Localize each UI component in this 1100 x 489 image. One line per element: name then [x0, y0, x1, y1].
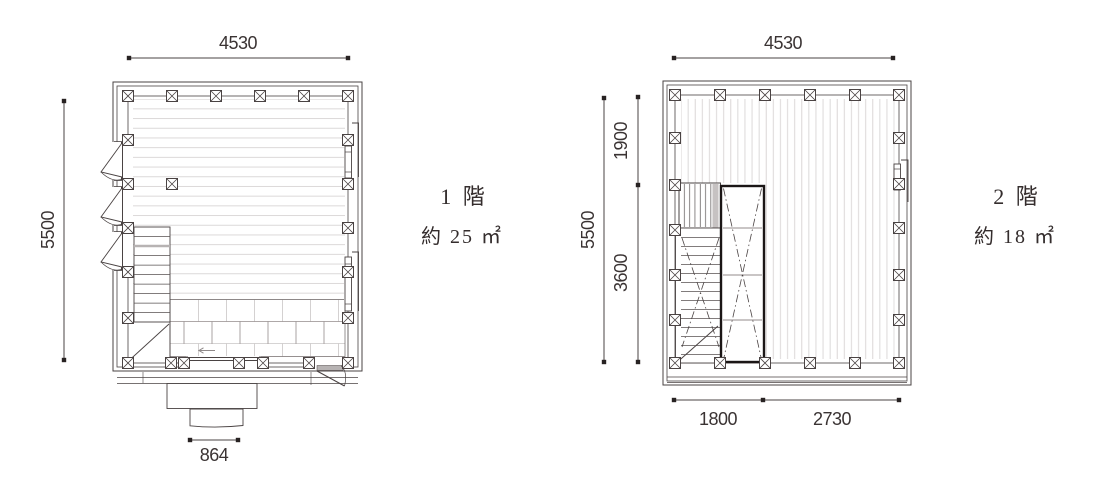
floor1-dimension-bottom: 864 [188, 438, 240, 465]
floor1-dim-entrance-text: 864 [200, 445, 229, 465]
floor2-dim-width-text: 4530 [764, 33, 803, 53]
floor1-dimension-left: 5500 [38, 99, 66, 362]
floor2-dim-upper-text: 1900 [611, 121, 631, 160]
floor2-dim-lower-text: 3600 [611, 253, 631, 292]
floor2-dimension-left-outer: 5500 [578, 96, 606, 364]
floor2-title: 2 階 [993, 184, 1041, 209]
floor2-dimension-top: 4530 [672, 33, 895, 60]
floor2-dimension-bottom: 1800 2730 [672, 398, 901, 429]
floor1-area: 約 25 ㎡ [421, 224, 503, 248]
floor2-dim-bottom-left-text: 1800 [699, 409, 738, 429]
floor-plans-drawing: 4530 5500 864 1 階 約 25 ㎡ [0, 0, 1100, 489]
floor2-label-group: 2 階 約 18 ㎡ [974, 184, 1056, 248]
floor2-staircase [676, 183, 766, 363]
floor1-window-left-1 [101, 142, 129, 181]
floor2-dim-height-text: 5500 [578, 210, 598, 249]
floor1-dimension-top: 4530 [127, 33, 350, 60]
floor1-entrance-tile [170, 300, 345, 357]
floor1-title: 1 階 [440, 184, 488, 209]
floor1-label-group: 1 階 約 25 ㎡ [421, 184, 503, 248]
floor2-base-lines [667, 377, 907, 383]
floor2-area: 約 18 ㎡ [974, 224, 1056, 248]
floor1-dim-height-text: 5500 [38, 210, 58, 249]
floor1-window-left-3 [101, 232, 129, 271]
floor1-plan: 4530 5500 864 1 階 約 25 ㎡ [38, 33, 503, 465]
floor1-window-left-2 [101, 187, 129, 226]
floor2-plan: 4530 5500 1900 3600 1800 2730 2 階 約 18 ㎡ [578, 33, 1056, 429]
floor1-window-right-1 [344, 123, 359, 178]
floor1-dim-width-text: 4530 [219, 33, 258, 53]
floor2-dimension-left-inner: 1900 3600 [611, 95, 640, 364]
floor1-window-right-2 [344, 252, 359, 311]
floor-plan-drawing-page: 4530 5500 864 1 階 約 25 ㎡ [0, 0, 1100, 489]
floor1-porch-steps [117, 372, 358, 427]
floor2-dim-bottom-right-text: 2730 [813, 409, 852, 429]
floor1-staircase [129, 227, 171, 361]
